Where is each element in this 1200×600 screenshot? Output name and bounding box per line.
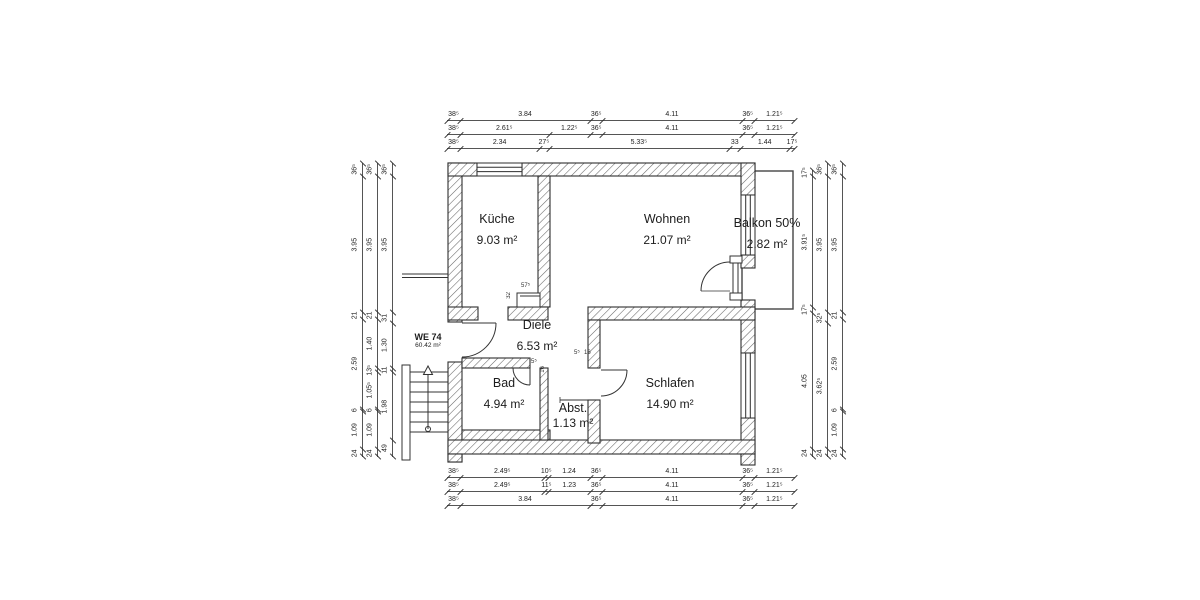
dim-label: 3.84 — [460, 109, 590, 119]
unit-label: WE 74 60.42 m² — [388, 332, 468, 350]
detail-dim-schlafen-door: 5⁵ — [574, 350, 580, 356]
dim-label: 1.22⁵ — [549, 123, 590, 133]
detail-dim-bad-door-jamb: 16 — [540, 366, 546, 373]
dim-label: 3.84 — [460, 494, 590, 504]
room-label-diele: Diele 6.53 m² — [472, 318, 602, 354]
dim-label: 1.21⁵ — [754, 123, 795, 133]
dim-label: 2.34 — [460, 137, 539, 147]
dim-chain-left-3: 36⁵3.95311.30111.9849 — [381, 163, 395, 457]
dim-label: 4.11 — [602, 480, 741, 490]
dim-label: 1.09 — [830, 411, 840, 449]
window-kueche-top — [477, 163, 522, 176]
dim-label: 31 — [380, 312, 390, 323]
dim-label: 1.30 — [380, 323, 390, 368]
room-name: Bad — [439, 376, 569, 391]
detail-dim-niche-width: 57⁵ — [521, 283, 530, 289]
unit-area: 60.42 m² — [388, 342, 468, 350]
dim-chain-top-1: 38⁵3.8436⁵4.1136⁵1.21⁵ — [447, 109, 795, 123]
dim-label: 1.21⁵ — [754, 494, 795, 504]
dim-label: 24 — [350, 449, 360, 457]
window-schlafen — [741, 353, 755, 418]
dim-label: 3.95 — [350, 176, 360, 313]
dim-label: 1.09 — [365, 411, 375, 449]
dim-label: 1.40 — [365, 319, 375, 367]
door-balkon — [701, 256, 742, 300]
dim-label: 49 — [380, 440, 390, 457]
room-area: 6.53 m² — [472, 339, 602, 354]
dim-chain-bottom-1: 38⁵2.49⁵10⁵1.2436⁵4.1136⁵1.21⁵ — [447, 466, 795, 480]
kueche-niche — [517, 293, 540, 307]
dim-label: 4.11 — [602, 494, 741, 504]
floorplan-page: Küche 9.03 m² Wohnen 21.07 m² Balkon 50%… — [0, 0, 1200, 600]
dim-label: 2.49⁵ — [460, 466, 544, 476]
dim-label: 3.95 — [830, 176, 840, 313]
dim-label: 32⁵ — [815, 312, 825, 323]
dim-label: 3.95 — [365, 176, 375, 313]
dim-chain-left-1: 36⁵3.95212.5961.0924 — [351, 163, 365, 457]
dim-line — [447, 148, 795, 149]
dim-label: 1.98 — [380, 372, 390, 440]
dim-chain-bottom-2: 38⁵2.49⁵11⁵1.2336⁵4.1136⁵1.21⁵ — [447, 480, 795, 494]
dim-chain-right-3: 36⁵3.95212.5961.0924 — [831, 163, 845, 457]
dim-label: 5.33⁵ — [549, 137, 730, 147]
dim-label: 1.05⁵ — [365, 372, 375, 408]
stairs — [402, 274, 448, 460]
dim-label: 1.21⁵ — [754, 466, 795, 476]
dim-chain-right-2: 36⁵3.9532⁵3.62⁵24 — [816, 163, 830, 457]
room-label-schlafen: Schlafen 14.90 m² — [605, 376, 735, 412]
dim-label: 1.09 — [350, 411, 360, 449]
dim-label: 24 — [815, 449, 825, 457]
unit-id: WE 74 — [388, 332, 468, 342]
dim-label: 4.11 — [602, 466, 741, 476]
dim-label: 4.11 — [602, 109, 741, 119]
dim-label: 24 — [830, 449, 840, 457]
dim-chain-left-2: 36⁵3.95211.4013⁵1.05⁵61.0924 — [366, 163, 380, 457]
floorplan-drawing — [0, 0, 1200, 600]
room-name: Diele — [472, 318, 602, 333]
dim-label: 1.21⁵ — [754, 109, 795, 119]
dim-label: 17⁵ — [800, 170, 810, 176]
dim-label: 24 — [365, 449, 375, 457]
room-name: Küche — [432, 212, 562, 227]
dim-label: 24 — [800, 449, 810, 457]
dim-label: 3.95 — [815, 176, 825, 313]
dim-label: 2.61⁵ — [460, 123, 549, 133]
dim-chain-bottom-3: 38⁵3.8436⁵4.1136⁵1.21⁵ — [447, 494, 795, 508]
dim-label: 4.05 — [800, 313, 810, 449]
room-area: 9.03 m² — [432, 233, 562, 248]
dim-chain-top-2: 38⁵2.61⁵1.22⁵36⁵4.1136⁵1.21⁵ — [447, 123, 795, 137]
dim-chain-right-1: 17⁵3.91⁵17⁵4.0524 — [801, 170, 815, 457]
dim-label: 2.59 — [350, 319, 360, 409]
room-label-kueche: Küche 9.03 m² — [432, 212, 562, 248]
dim-label: 1.23 — [548, 480, 590, 490]
dim-label: 1.21⁵ — [754, 480, 795, 490]
dim-label: 2.49⁵ — [460, 480, 544, 490]
room-area: 14.90 m² — [605, 397, 735, 412]
dim-label: 4.11 — [602, 123, 741, 133]
room-area: 1.13 m² — [508, 416, 638, 431]
dim-label: 1.44 — [740, 137, 789, 147]
dim-label: 1.24 — [548, 466, 590, 476]
dim-chain-top-3: 38⁵2.3427⁵5.33⁵331.4417⁵ — [447, 137, 795, 151]
dim-label: 2.59 — [830, 319, 840, 409]
detail-dim-bad-door: 5⁵ — [531, 359, 537, 365]
dim-label: 3.95 — [380, 176, 390, 313]
dim-label: 3.91⁵ — [800, 176, 810, 307]
dim-label: 3.62⁵ — [815, 323, 825, 448]
detail-dim-schlafen-door-jamb: 16 — [584, 350, 591, 356]
detail-dim-niche-height: 32 — [506, 292, 512, 299]
room-name: Schlafen — [605, 376, 735, 391]
